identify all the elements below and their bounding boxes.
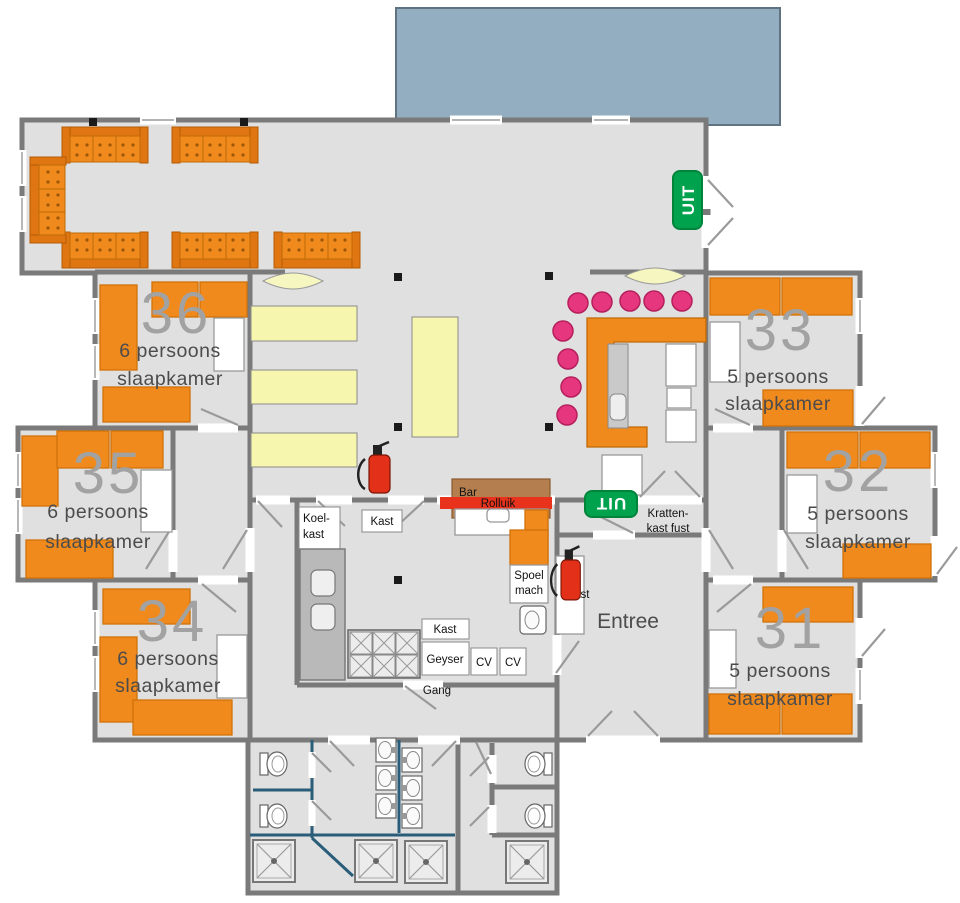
room-32-capacity: 5 persoons xyxy=(807,503,908,525)
room-36-number: 36 xyxy=(141,281,212,346)
room-34-number: 34 xyxy=(137,589,208,654)
room-34-type: slaapkamer xyxy=(115,675,221,697)
toilet xyxy=(260,804,287,828)
toilet xyxy=(525,752,552,776)
sink xyxy=(376,766,396,790)
room-33-number: 33 xyxy=(745,298,816,363)
shower xyxy=(405,841,447,883)
room-31-type: slaapkamer xyxy=(727,688,833,710)
cv-label-1: CV xyxy=(476,657,492,669)
sink xyxy=(376,794,396,818)
exit-sign-bar: UIT xyxy=(585,491,637,517)
shower xyxy=(253,840,295,882)
exit-sign-bar-text: UIT xyxy=(596,494,626,513)
room-31-capacity: 5 persoons xyxy=(729,660,830,682)
kratten-label-line1: Kratten- xyxy=(648,508,689,520)
room-36-type: slaapkamer xyxy=(117,368,223,390)
rolluik-label: Rolluik xyxy=(481,498,516,510)
room-33-capacity: 5 persoons xyxy=(727,366,828,388)
toilet xyxy=(525,804,552,828)
room-33-type: slaapkamer xyxy=(725,393,831,415)
toilet xyxy=(260,752,287,776)
spoel-label-line1: Spoel xyxy=(514,570,543,582)
geyser-label: Geyser xyxy=(426,654,463,666)
shower xyxy=(506,841,548,883)
room-35-type: slaapkamer xyxy=(45,531,151,553)
floor-plan: Bar Rolluik Koel- kast Kast Kast Geyser … xyxy=(0,0,960,898)
sink xyxy=(402,804,422,828)
kast-label-1: Kast xyxy=(370,516,394,528)
gang-label: Gang xyxy=(423,685,451,697)
kratten-label-line2: kast fust xyxy=(647,523,691,535)
room-35-number: 35 xyxy=(73,441,144,506)
koelkast-label-line2: kast xyxy=(303,529,325,541)
room-32-number: 32 xyxy=(823,439,894,504)
spoel-label-line2: mach xyxy=(515,585,543,597)
exit-sign-hall: UIT xyxy=(673,171,702,229)
koelkast-label-line1: Koel- xyxy=(303,513,330,525)
cv-label-2: CV xyxy=(505,657,521,669)
room-34-capacity: 6 persoons xyxy=(117,648,218,670)
sink xyxy=(402,776,422,800)
sink xyxy=(376,738,396,762)
room-32-type: slaapkamer xyxy=(805,531,911,553)
kast-label-2: Kast xyxy=(433,624,457,636)
terrace xyxy=(396,8,780,125)
room-36-capacity: 6 persoons xyxy=(119,340,220,362)
room-35-capacity: 6 persoons xyxy=(47,501,148,523)
entree-label: Entree xyxy=(597,610,659,633)
stove xyxy=(348,630,420,678)
sink xyxy=(402,748,422,772)
shower xyxy=(355,840,397,882)
exit-sign-hall-text: UIT xyxy=(679,185,698,215)
room-31-number: 31 xyxy=(755,596,826,661)
